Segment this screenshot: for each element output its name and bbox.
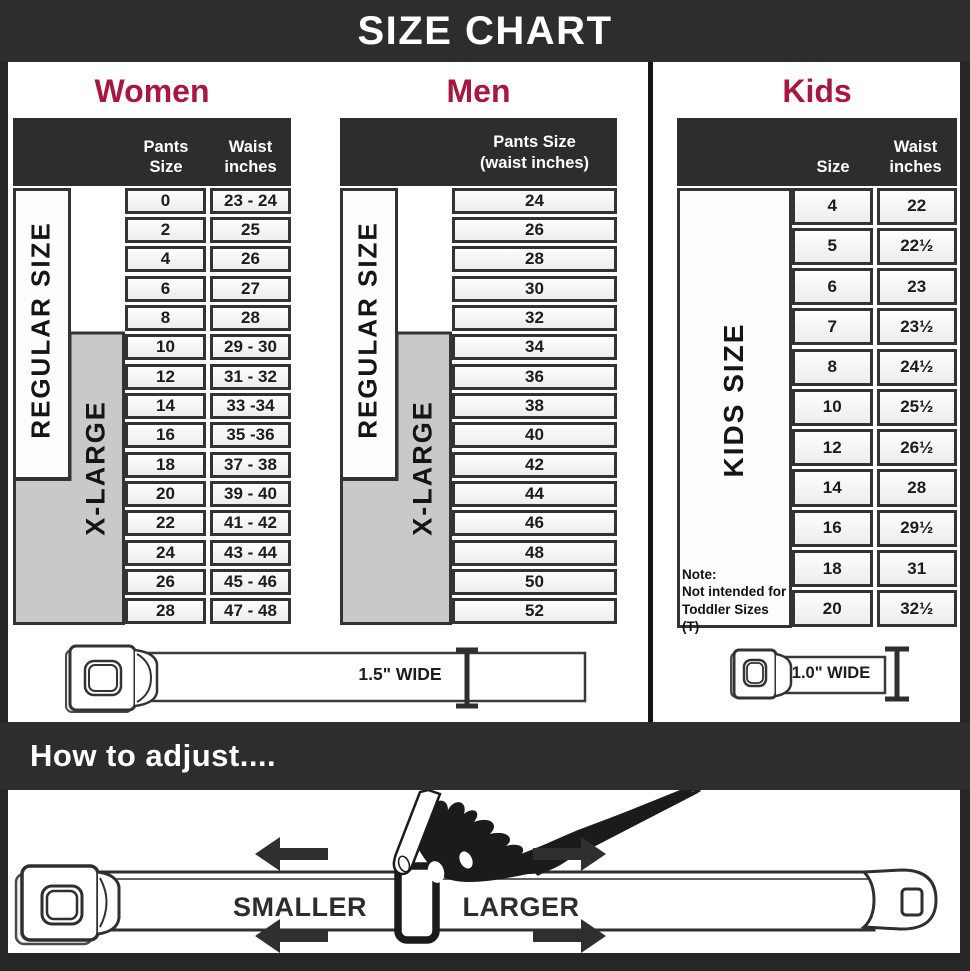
men-xlarge-label: X-LARGE [408, 400, 439, 536]
smaller-label: SMALLER [233, 892, 361, 923]
women-table-row: 6 27 [125, 274, 291, 303]
kids-heading: Kids [677, 73, 957, 110]
men-table-row: 44 [452, 479, 617, 508]
kids-size-cell: 16 [792, 510, 873, 547]
kids-size-cell: 8 [792, 349, 873, 386]
seatbelt-buckle-icon [70, 646, 135, 710]
men-size-rows: 24 26 28 30 32 34 36 [452, 186, 617, 626]
pants-size-cell: 28 [452, 246, 617, 272]
pants-size-cell: 4 [125, 246, 206, 272]
adult-belt-width-label: 1.5" WIDE [348, 664, 452, 685]
how-to-heading: How to adjust.... [0, 738, 276, 774]
men-table-row: 30 [452, 274, 617, 303]
pants-size-cell: 26 [125, 569, 206, 595]
waist-inches-cell: 27 [210, 276, 291, 302]
women-heading: Women [13, 73, 291, 110]
pants-size-cell: 16 [125, 422, 206, 448]
kids-size-cell: 6 [792, 268, 873, 305]
waist-inches-cell: 23 [877, 268, 958, 305]
men-table-row: 46 [452, 509, 617, 538]
kids-table-row: 4 22 [792, 186, 957, 226]
belt-tip [864, 870, 936, 929]
women-table-header: Pants Size Waist inches [13, 118, 291, 186]
pants-size-cell: 26 [452, 217, 617, 243]
pants-size-cell: 20 [125, 481, 206, 507]
women-table-row: 0 23 - 24 [125, 186, 291, 215]
men-table-row: 48 [452, 538, 617, 567]
belt-tip-hole [902, 889, 922, 915]
kids-size-rows: 4 22 5 22½ 6 23 7 23½ 8 24½ [792, 186, 957, 629]
women-table-row: 8 28 [125, 303, 291, 332]
pants-size-cell: 30 [452, 276, 617, 302]
larger-label: LARGER [462, 892, 580, 923]
hand-icon [412, 790, 698, 882]
pants-size-cell: 44 [452, 481, 617, 507]
women-table-row: 12 31 - 32 [125, 362, 291, 391]
women-pants-size-column-header: Pants Size [125, 137, 207, 178]
pants-size-cell: 32 [452, 305, 617, 331]
men-table-row: 28 [452, 245, 617, 274]
men-table-row: 42 [452, 450, 617, 479]
men-header-line2: (waist inches) [480, 154, 589, 172]
pants-size-cell: 48 [452, 540, 617, 566]
men-table-row: 50 [452, 567, 617, 596]
seatbelt-buckle-icon [22, 866, 98, 940]
buckle-latch [135, 650, 157, 706]
pants-size-cell: 52 [452, 598, 617, 624]
kids-table-row: 14 28 [792, 468, 957, 508]
men-table-row: 52 [452, 597, 617, 626]
men-table-row: 24 [452, 186, 617, 215]
waist-inches-cell: 24½ [877, 349, 958, 386]
pants-size-cell: 22 [125, 510, 206, 536]
how-to-banner: How to adjust.... [0, 722, 970, 790]
pants-size-cell: 2 [125, 217, 206, 243]
pants-size-cell: 40 [452, 422, 617, 448]
women-table-row: 10 29 - 30 [125, 333, 291, 362]
kids-size-cell: 14 [792, 469, 873, 506]
kids-size-cell: 20 [792, 590, 873, 627]
waist-inches-cell: 23 - 24 [210, 188, 291, 214]
waist-inches-cell: 31 - 32 [210, 364, 291, 390]
pants-size-cell: 24 [125, 540, 206, 566]
waist-inches-cell: 35 -36 [210, 422, 291, 448]
waist-inches-cell: 39 - 40 [210, 481, 291, 507]
pants-size-cell: 18 [125, 452, 206, 478]
women-table-row: 20 39 - 40 [125, 479, 291, 508]
men-table-row: 36 [452, 362, 617, 391]
kids-table-row: 20 32½ [792, 589, 957, 629]
smaller-arrow-top [255, 837, 328, 871]
kids-belt-width-label: 1.0" WIDE [788, 664, 874, 683]
adult-belt-illustration [60, 640, 595, 718]
belt-adjust-illustration [8, 790, 960, 953]
waist-inches-cell: 23½ [877, 308, 958, 345]
waist-inches-cell: 22 [877, 188, 958, 225]
waist-inches-cell: 33 -34 [210, 393, 291, 419]
women-xlarge-label: X-LARGE [81, 400, 112, 536]
page-title: SIZE CHART [358, 9, 613, 54]
kids-table-header: Size Waist inches [677, 118, 957, 186]
pants-size-cell: 8 [125, 305, 206, 331]
waist-inches-cell: 45 - 46 [210, 569, 291, 595]
waist-inches-cell: 47 - 48 [210, 598, 291, 624]
kids-note: Note: Not intended for Toddler Sizes (T) [682, 566, 788, 635]
pants-size-cell: 50 [452, 569, 617, 595]
waist-inches-cell: 37 - 38 [210, 452, 291, 478]
waist-inches-cell: 43 - 44 [210, 540, 291, 566]
men-table-row: 40 [452, 421, 617, 450]
kids-table-row: 10 25½ [792, 387, 957, 427]
women-table-row: 22 41 - 42 [125, 509, 291, 538]
size-chart-infographic: SIZE CHART Women Men Kids Pants Size Wai… [0, 0, 970, 971]
waist-inches-cell: 25½ [877, 389, 958, 426]
men-header-line1: Pants Size [493, 133, 576, 151]
men-table-header: Pants Size (waist inches) [340, 118, 617, 186]
kids-size-cell: 4 [792, 188, 873, 225]
waist-inches-cell: 29½ [877, 510, 958, 547]
women-waist-column-header: Waist inches [210, 137, 291, 178]
kids-size-cell: 12 [792, 429, 873, 466]
pants-size-cell: 0 [125, 188, 206, 214]
women-table-row: 14 33 -34 [125, 391, 291, 420]
kids-table-row: 18 31 [792, 548, 957, 588]
pants-size-cell: 10 [125, 334, 206, 360]
kids-size-cell: 10 [792, 389, 873, 426]
kids-size-column-header: Size [792, 157, 874, 178]
pants-size-cell: 38 [452, 393, 617, 419]
waist-inches-cell: 41 - 42 [210, 510, 291, 536]
men-table-row: 38 [452, 391, 617, 420]
pants-size-cell: 28 [125, 598, 206, 624]
women-size-rows: 0 23 - 24 2 25 4 26 6 27 8 28 [125, 186, 291, 626]
waist-inches-cell: 28 [210, 305, 291, 331]
waist-inches-cell: 29 - 30 [210, 334, 291, 360]
women-table-row: 24 43 - 44 [125, 538, 291, 567]
pants-size-cell: 42 [452, 452, 617, 478]
men-regular-size-label: REGULAR SIZE [353, 221, 384, 439]
pants-size-cell: 6 [125, 276, 206, 302]
waist-inches-cell: 25 [210, 217, 291, 243]
kids-waist-column-header: Waist inches [874, 137, 957, 178]
men-table-row: 34 [452, 333, 617, 362]
women-table-row: 26 45 - 46 [125, 567, 291, 596]
kids-table-row: 8 24½ [792, 347, 957, 387]
men-table-row: 32 [452, 303, 617, 332]
kids-size-cell: 5 [792, 228, 873, 265]
kids-note-body: Not intended for Toddler Sizes (T) [682, 583, 788, 635]
women-table-row: 18 37 - 38 [125, 450, 291, 479]
waist-inches-cell: 32½ [877, 590, 958, 627]
kids-size-cell: 18 [792, 550, 873, 587]
width-measure-ibeam [885, 649, 909, 699]
waist-inches-cell: 31 [877, 550, 958, 587]
waist-inches-cell: 28 [877, 469, 958, 506]
women-table-row: 16 35 -36 [125, 421, 291, 450]
pants-size-cell: 24 [452, 188, 617, 214]
kids-size-label: KIDS SIZE [718, 323, 750, 478]
waist-inches-cell: 26 [210, 246, 291, 272]
women-table-row: 28 47 - 48 [125, 597, 291, 626]
pants-size-cell: 34 [452, 334, 617, 360]
women-regular-size-label: REGULAR SIZE [26, 221, 57, 439]
kids-note-title: Note: [682, 566, 788, 583]
pants-size-cell: 46 [452, 510, 617, 536]
pants-size-cell: 12 [125, 364, 206, 390]
kids-section-divider [648, 62, 653, 722]
men-table-row: 26 [452, 215, 617, 244]
kids-table-row: 16 29½ [792, 508, 957, 548]
kids-table-row: 7 23½ [792, 307, 957, 347]
kids-table-row: 6 23 [792, 267, 957, 307]
pants-size-cell: 36 [452, 364, 617, 390]
pants-size-cell: 14 [125, 393, 206, 419]
seatbelt-buckle-icon [734, 650, 776, 698]
women-table-row: 2 25 [125, 215, 291, 244]
kids-table-row: 12 26½ [792, 428, 957, 468]
waist-inches-cell: 22½ [877, 228, 958, 265]
men-pants-size-column-header: Pants Size (waist inches) [452, 132, 617, 173]
kids-table-row: 5 22½ [792, 226, 957, 266]
kids-size-cell: 7 [792, 308, 873, 345]
title-banner: SIZE CHART [0, 0, 970, 62]
women-table-row: 4 26 [125, 245, 291, 274]
men-heading: Men [340, 73, 617, 110]
waist-inches-cell: 26½ [877, 429, 958, 466]
